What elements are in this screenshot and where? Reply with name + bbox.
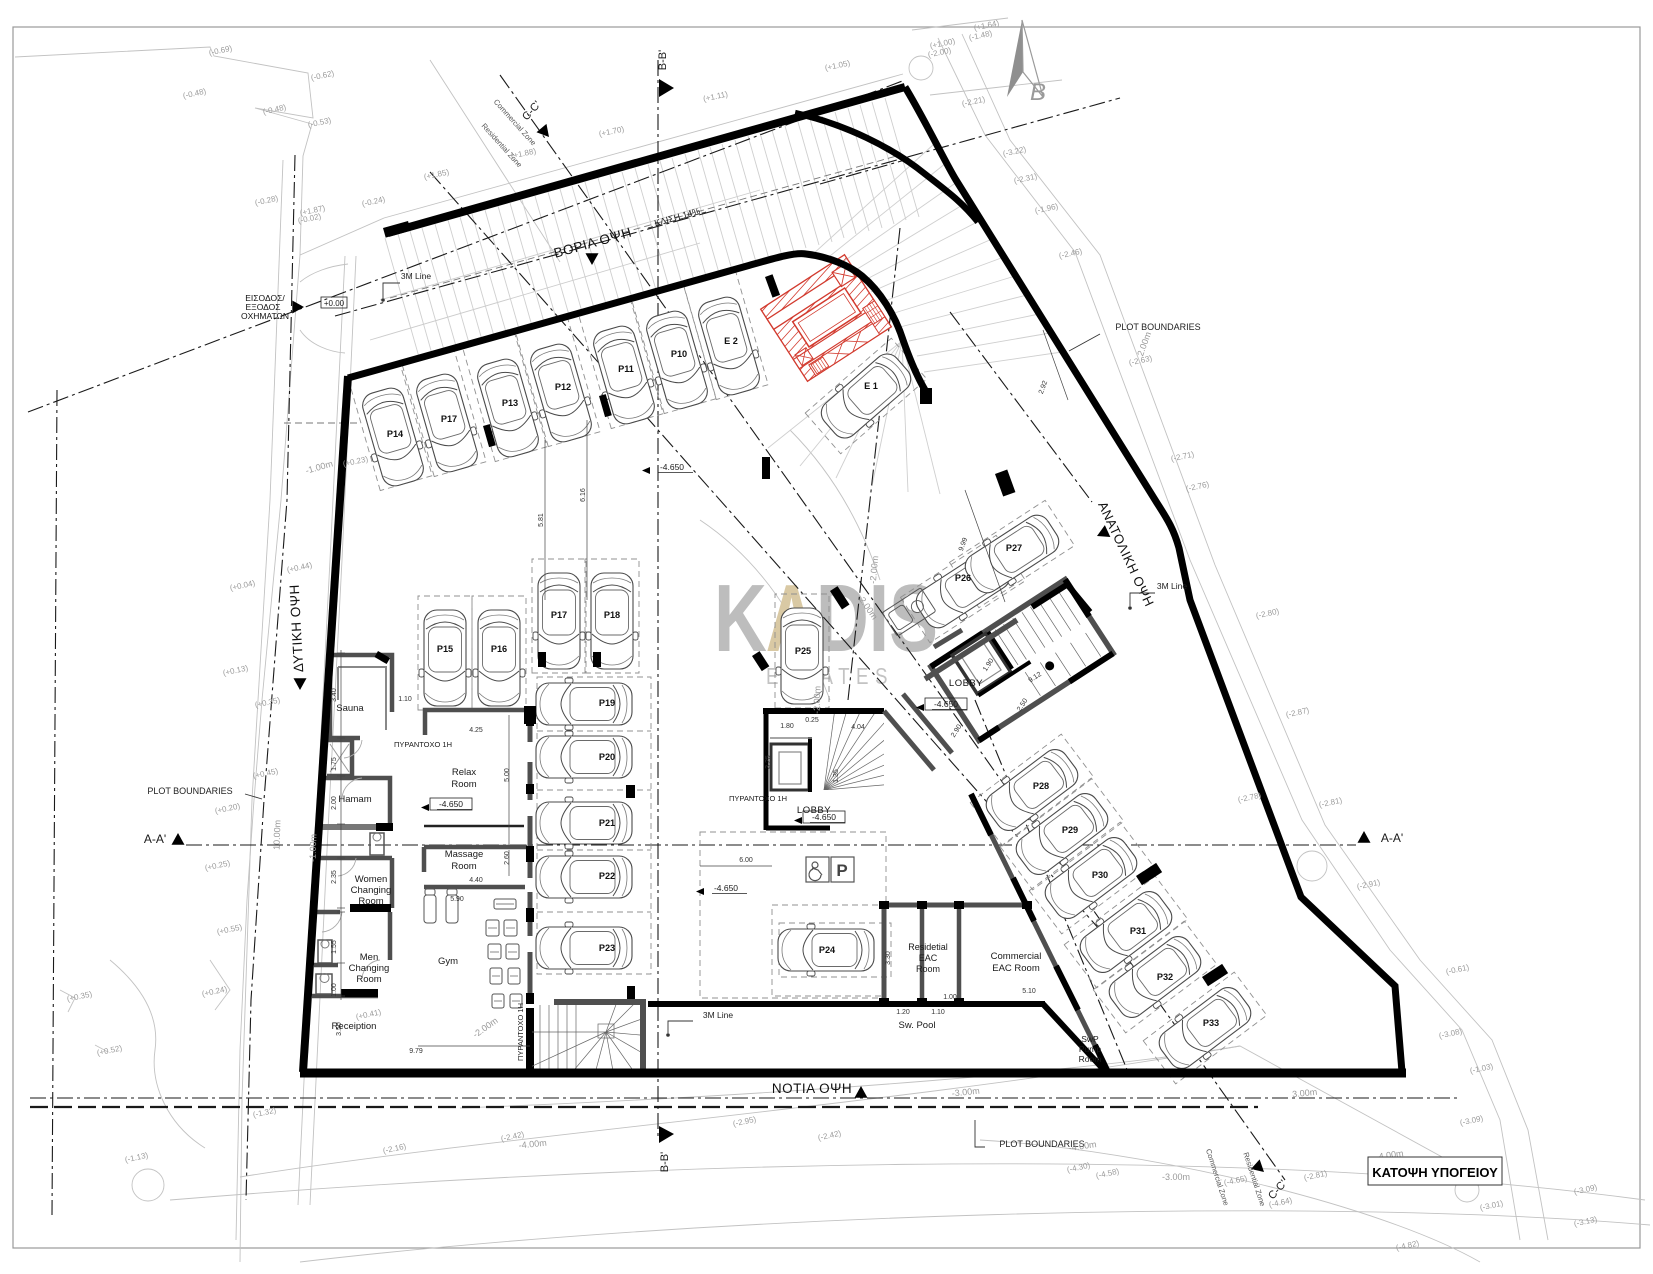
svg-text:2.60: 2.60 (504, 851, 511, 865)
svg-text:P33: P33 (1203, 1018, 1219, 1028)
svg-text:2.00: 2.00 (331, 796, 338, 810)
svg-text:-4.650: -4.650 (934, 699, 958, 709)
svg-text:Relax: Relax (452, 767, 477, 778)
svg-text:P18: P18 (604, 610, 620, 620)
svg-text:Massage: Massage (445, 849, 484, 860)
svg-text:PLOT BOUNDARIES: PLOT BOUNDARIES (147, 786, 232, 796)
svg-text:P22: P22 (599, 871, 615, 881)
svg-text:P15: P15 (437, 644, 453, 654)
svg-text:Room: Room (358, 896, 383, 907)
svg-text:B: B (1030, 79, 1046, 106)
svg-text:Women: Women (355, 874, 388, 885)
svg-text:ΚΑΤΟΨΗ ΥΠΟΓΕΙΟΥ: ΚΑΤΟΨΗ ΥΠΟΓΕΙΟΥ (1372, 1165, 1498, 1180)
svg-text:ΠΥΡΑΝΤΟΧΟ 1Η: ΠΥΡΑΝΤΟΧΟ 1Η (516, 1003, 525, 1061)
svg-text:Gym: Gym (438, 956, 458, 967)
svg-text:1.00: 1.00 (331, 983, 338, 997)
svg-text:1.20: 1.20 (896, 1009, 910, 1016)
svg-text:P20: P20 (599, 752, 615, 762)
svg-text:ΟΧΗΜΑΤΩΝ: ΟΧΗΜΑΤΩΝ (241, 311, 289, 321)
svg-text:-4.650: -4.650 (714, 883, 738, 893)
svg-text:1.10: 1.10 (931, 1009, 945, 1016)
svg-text:P14: P14 (387, 429, 404, 439)
svg-text:1.55: 1.55 (331, 940, 338, 954)
svg-text:1.35: 1.35 (833, 769, 840, 783)
svg-text:1.75: 1.75 (331, 757, 338, 771)
svg-text:Changing: Changing (349, 963, 390, 974)
svg-text:Pump: Pump (1079, 1044, 1101, 1054)
svg-text:PLOT BOUNDARIES: PLOT BOUNDARIES (1115, 322, 1200, 332)
svg-text:3M Line: 3M Line (1157, 581, 1188, 591)
svg-text:P25: P25 (795, 646, 811, 656)
svg-text:EAC Room: EAC Room (992, 963, 1040, 974)
svg-text:P28: P28 (1033, 781, 1049, 791)
svg-text:3.40: 3.40 (331, 688, 338, 702)
svg-text:3.30: 3.30 (885, 951, 892, 965)
svg-text:-3.00m: -3.00m (1162, 1172, 1190, 1182)
svg-text:3M Line: 3M Line (401, 271, 432, 281)
svg-text:A-A': A-A' (1381, 831, 1403, 845)
svg-text:P26: P26 (955, 573, 971, 583)
svg-text:1.80: 1.80 (780, 723, 794, 730)
svg-text:5.10: 5.10 (1022, 988, 1036, 995)
svg-text:P24: P24 (819, 945, 836, 955)
svg-text:Room: Room (916, 964, 940, 974)
svg-text:P23: P23 (599, 943, 615, 953)
svg-text:P17: P17 (551, 610, 567, 620)
svg-text:2.35: 2.35 (331, 870, 338, 884)
svg-text:B-B': B-B' (659, 1152, 671, 1172)
svg-text:B-B': B-B' (657, 50, 669, 70)
svg-text:Room: Room (356, 974, 381, 985)
svg-text:Hamam: Hamam (338, 794, 371, 805)
svg-text:10.00m: 10.00m (271, 820, 282, 850)
svg-text:-4.650: -4.650 (660, 462, 684, 472)
svg-text:1.00: 1.00 (943, 994, 957, 1001)
svg-text:-4.650: -4.650 (812, 812, 836, 822)
svg-text:P13: P13 (502, 398, 518, 408)
svg-text:P21: P21 (599, 818, 615, 828)
svg-text:LOBBY: LOBBY (949, 678, 983, 689)
svg-text:P12: P12 (555, 382, 571, 392)
svg-text:6.00: 6.00 (739, 857, 753, 864)
svg-text:P16: P16 (491, 644, 507, 654)
svg-text:A-A': A-A' (144, 832, 166, 846)
svg-text:P30: P30 (1092, 870, 1108, 880)
svg-text:ΠΥΡΑΝΤΟΧΟ 1Η: ΠΥΡΑΝΤΟΧΟ 1Η (394, 740, 452, 749)
svg-text:5.81: 5.81 (538, 513, 545, 527)
svg-text:Residetial: Residetial (908, 942, 948, 952)
svg-text:Room: Room (451, 861, 476, 872)
svg-text:Room: Room (451, 779, 476, 790)
svg-text:KΛDIS: KΛDIS (714, 565, 938, 672)
svg-text:E 2: E 2 (724, 336, 738, 346)
svg-text:P17: P17 (441, 414, 457, 424)
svg-text:P11: P11 (618, 364, 634, 374)
svg-text:P19: P19 (599, 698, 615, 708)
svg-text:P27: P27 (1006, 543, 1022, 553)
svg-text:Room: Room (1079, 1054, 1102, 1064)
svg-text:3.50: 3.50 (336, 1022, 343, 1036)
svg-text:P31: P31 (1130, 926, 1146, 936)
svg-text:P32: P32 (1157, 972, 1173, 982)
svg-text:Commercial: Commercial (991, 951, 1042, 962)
svg-text:ΝΟΤΙΑ ΟΨΗ: ΝΟΤΙΑ ΟΨΗ (772, 1081, 852, 1096)
svg-text:+0.00: +0.00 (324, 299, 345, 308)
svg-text:9.79: 9.79 (409, 1048, 423, 1055)
svg-text:Sauna: Sauna (336, 703, 364, 714)
svg-text:Changing: Changing (351, 885, 392, 896)
svg-text:4.25: 4.25 (469, 727, 483, 734)
svg-text:6.16: 6.16 (580, 488, 587, 502)
svg-text:3M Line: 3M Line (703, 1010, 734, 1020)
svg-text:-1.00m: -1.00m (308, 834, 319, 862)
svg-text:5.90: 5.90 (450, 896, 464, 903)
svg-text:-2.00m: -2.00m (812, 686, 823, 714)
svg-text:Men: Men (360, 952, 378, 963)
svg-text:ΠΥΡΑΝΤΟΧΟ 1Η: ΠΥΡΑΝΤΟΧΟ 1Η (729, 794, 787, 803)
svg-text:P: P (836, 861, 847, 880)
svg-text:4.40: 4.40 (469, 877, 483, 884)
svg-text:3.25: 3.25 (765, 755, 772, 769)
svg-text:-4.650: -4.650 (439, 799, 463, 809)
svg-text:P29: P29 (1062, 825, 1078, 835)
svg-text:4.04: 4.04 (851, 724, 865, 731)
svg-text:1.10: 1.10 (398, 696, 412, 703)
svg-text:E 1: E 1 (864, 381, 878, 391)
svg-text:5.00: 5.00 (504, 768, 511, 782)
svg-text:0.25: 0.25 (805, 717, 819, 724)
svg-text:P10: P10 (671, 349, 687, 359)
svg-text:EAC: EAC (919, 953, 938, 963)
svg-text:Sw. Pool: Sw. Pool (899, 1020, 936, 1031)
svg-text:SwP: SwP (1081, 1034, 1099, 1044)
